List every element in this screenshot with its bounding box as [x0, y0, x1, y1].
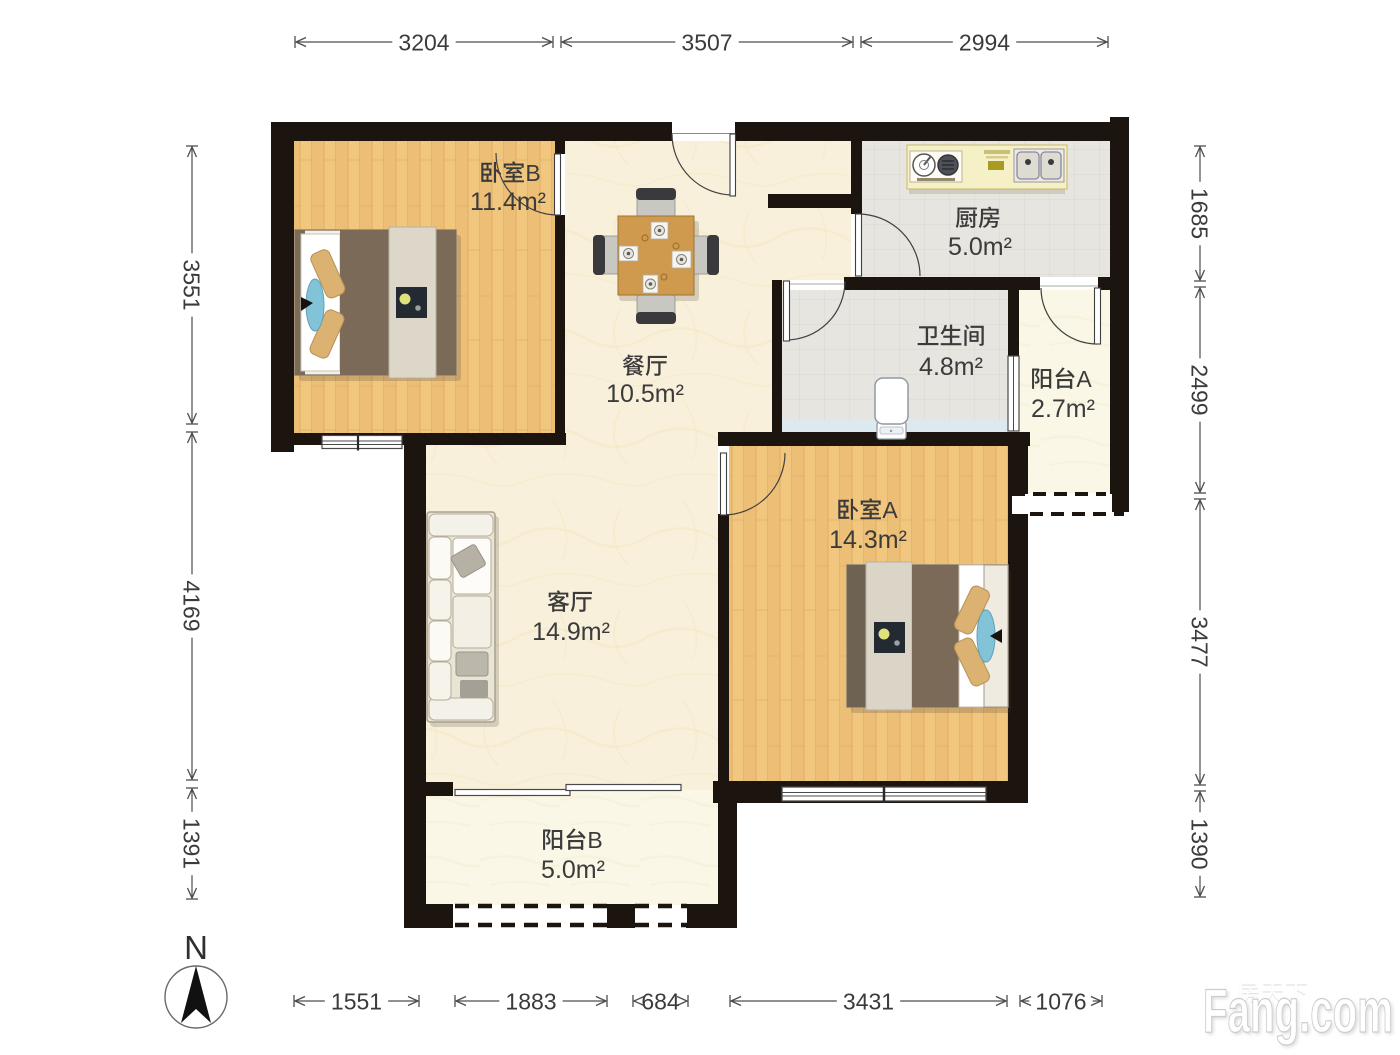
svg-text:B: B: [587, 827, 602, 853]
svg-text:3477: 3477: [1187, 616, 1213, 667]
svg-text:14.3m²: 14.3m²: [829, 526, 907, 554]
svg-text:4.8m²: 4.8m²: [919, 353, 983, 381]
svg-text:5.0m²: 5.0m²: [948, 233, 1012, 261]
svg-text:3551: 3551: [179, 259, 205, 310]
svg-text:1391: 1391: [179, 818, 205, 869]
svg-text:1076: 1076: [1035, 988, 1086, 1014]
svg-text:1390: 1390: [1187, 818, 1213, 869]
svg-text:14.9m²: 14.9m²: [532, 618, 610, 646]
svg-text:684: 684: [641, 988, 680, 1014]
svg-text:5.0m²: 5.0m²: [541, 856, 605, 884]
svg-text:Fang.com: Fang.com: [1203, 977, 1393, 1046]
svg-text:1883: 1883: [505, 988, 556, 1014]
svg-text:1685: 1685: [1187, 188, 1213, 239]
svg-text:2994: 2994: [959, 29, 1010, 55]
svg-text:A: A: [882, 497, 898, 523]
svg-text:11.4m²: 11.4m²: [470, 188, 546, 216]
svg-text:3431: 3431: [843, 988, 894, 1014]
svg-text:2.7m²: 2.7m²: [1031, 395, 1095, 423]
svg-text:3204: 3204: [398, 29, 449, 55]
svg-text:1551: 1551: [331, 988, 382, 1014]
svg-text:B: B: [525, 160, 540, 186]
svg-text:10.5m²: 10.5m²: [606, 380, 684, 408]
svg-text:3507: 3507: [681, 29, 732, 55]
svg-text:N: N: [184, 929, 208, 966]
svg-text:4169: 4169: [179, 580, 205, 631]
svg-text:A: A: [1076, 366, 1092, 392]
svg-text:2499: 2499: [1187, 364, 1213, 415]
